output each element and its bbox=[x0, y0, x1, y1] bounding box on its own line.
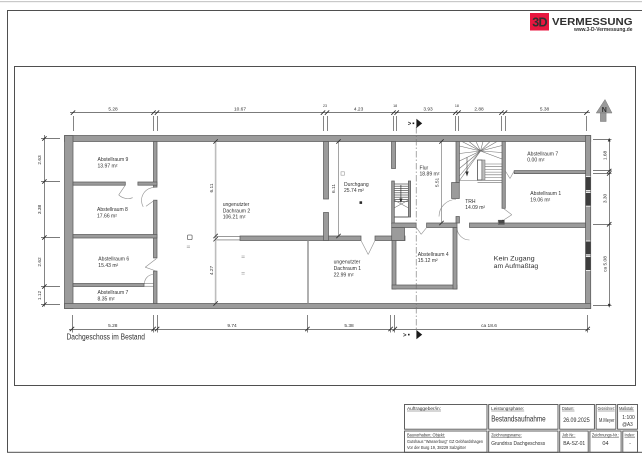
svg-text:04: 04 bbox=[602, 441, 608, 447]
svg-text:3D: 3D bbox=[532, 16, 547, 30]
svg-text:Bauvorhaben; Objekt:: Bauvorhaben; Objekt: bbox=[407, 432, 445, 437]
svg-text:-: - bbox=[629, 441, 631, 447]
svg-text:15.43 m²: 15.43 m² bbox=[98, 263, 118, 269]
svg-text:>: > bbox=[403, 333, 407, 339]
svg-text:5.28: 5.28 bbox=[108, 107, 118, 113]
svg-text:6.11: 6.11 bbox=[331, 184, 337, 193]
svg-text:BA-SZ-01: BA-SZ-01 bbox=[563, 441, 585, 447]
svg-text:10.67: 10.67 bbox=[234, 107, 246, 113]
svg-text:5.38: 5.38 bbox=[540, 107, 550, 113]
svg-text:26.09.2025: 26.09.2025 bbox=[563, 418, 590, 424]
svg-text:9.74: 9.74 bbox=[227, 323, 237, 329]
svg-text:ungenutzter: ungenutzter bbox=[334, 260, 361, 266]
svg-text:Gutshaus "Wasserburg" GZ Gebha: Gutshaus "Wasserburg" GZ Gebhardshagen bbox=[407, 439, 483, 444]
svg-text:106.21 m²: 106.21 m² bbox=[223, 215, 246, 221]
svg-text:13.97 m²: 13.97 m² bbox=[98, 164, 118, 170]
svg-text:M.Meyer: M.Meyer bbox=[599, 418, 615, 424]
svg-text:Datum:: Datum: bbox=[562, 406, 575, 411]
svg-text:2.63: 2.63 bbox=[37, 155, 43, 165]
svg-text:4.27: 4.27 bbox=[209, 266, 215, 276]
svg-text:Abstellraum 7: Abstellraum 7 bbox=[98, 290, 129, 296]
svg-text:am Aufmaßtag: am Aufmaßtag bbox=[494, 263, 539, 270]
svg-text:Dachgeschoss im Bestand: Dachgeschoss im Bestand bbox=[67, 333, 146, 342]
svg-text:25.74 m²: 25.74 m² bbox=[344, 188, 364, 194]
svg-text:23: 23 bbox=[323, 104, 327, 108]
svg-text:Auftraggeber/in:: Auftraggeber/in: bbox=[407, 406, 441, 411]
svg-text:TRH: TRH bbox=[465, 199, 476, 205]
svg-text:4.23: 4.23 bbox=[354, 107, 364, 113]
svg-text:18: 18 bbox=[455, 104, 459, 108]
svg-text:Dachraum 1: Dachraum 1 bbox=[334, 266, 362, 272]
svg-text:Bestandsaufnahme: Bestandsaufnahme bbox=[491, 414, 546, 424]
svg-text:Index:: Index: bbox=[625, 432, 636, 437]
svg-text:3.38: 3.38 bbox=[37, 205, 43, 215]
svg-text:5.51: 5.51 bbox=[434, 178, 440, 188]
svg-text:18: 18 bbox=[393, 104, 397, 108]
svg-text:N: N bbox=[602, 107, 607, 114]
svg-text:Abstellraum 9: Abstellraum 9 bbox=[98, 157, 129, 163]
svg-text:Vor der Burg 19, 38229 Salzgit: Vor der Burg 19, 38229 Salzgitter bbox=[407, 445, 466, 450]
svg-text:Zeichnungs-Nr.:: Zeichnungs-Nr.: bbox=[592, 432, 619, 437]
svg-text:ungenutzter: ungenutzter bbox=[223, 202, 250, 208]
svg-text:15.12 m²: 15.12 m² bbox=[418, 258, 438, 264]
svg-text:Kein Zugang: Kein Zugang bbox=[494, 256, 535, 263]
svg-text:Leistungsphase:: Leistungsphase: bbox=[491, 406, 524, 411]
svg-text:1.68: 1.68 bbox=[602, 151, 608, 161]
svg-text:3.30: 3.30 bbox=[602, 194, 608, 204]
svg-text:@A3: @A3 bbox=[622, 422, 633, 428]
svg-text:6.11: 6.11 bbox=[209, 183, 215, 192]
svg-text:2.88: 2.88 bbox=[474, 107, 484, 113]
svg-text:Abstellraum 6: Abstellraum 6 bbox=[98, 257, 129, 263]
svg-text:5.28: 5.28 bbox=[108, 323, 118, 329]
svg-text:Dachraum 2: Dachraum 2 bbox=[223, 208, 251, 214]
svg-text:Abstellraum 8: Abstellraum 8 bbox=[97, 207, 128, 213]
svg-text:ca 5.08: ca 5.08 bbox=[602, 256, 608, 272]
svg-text:Zeichnungsname:: Zeichnungsname: bbox=[491, 432, 522, 437]
svg-text:3.93: 3.93 bbox=[423, 107, 433, 113]
svg-text:1.12: 1.12 bbox=[37, 291, 43, 301]
svg-text:>: > bbox=[408, 122, 412, 128]
svg-text:19.06 m²: 19.06 m² bbox=[530, 198, 550, 204]
svg-text:14.09 m²: 14.09 m² bbox=[465, 205, 485, 211]
svg-text:8.35 m²: 8.35 m² bbox=[98, 297, 115, 303]
svg-text:22.99 m²: 22.99 m² bbox=[334, 272, 354, 278]
svg-text:5.38: 5.38 bbox=[344, 323, 354, 329]
svg-text:Abstellraum 1: Abstellraum 1 bbox=[530, 191, 561, 197]
svg-text:Grundriss Dachgeschoss: Grundriss Dachgeschoss bbox=[491, 441, 545, 447]
svg-text:17.66 m²: 17.66 m² bbox=[97, 214, 117, 220]
svg-text:Job Nr.:: Job Nr.: bbox=[562, 432, 576, 437]
svg-text:www.3-D-Vermessung.de: www.3-D-Vermessung.de bbox=[573, 27, 633, 33]
svg-text:ca 18.6: ca 18.6 bbox=[481, 323, 497, 329]
svg-text:Gezeichnet:: Gezeichnet: bbox=[598, 406, 615, 411]
svg-text:Maßstab:: Maßstab: bbox=[619, 406, 634, 411]
svg-text:0.00 m²: 0.00 m² bbox=[527, 158, 544, 164]
svg-text:1:100: 1:100 bbox=[622, 415, 635, 421]
svg-text:2.62: 2.62 bbox=[37, 257, 43, 267]
svg-text:18.89 m²: 18.89 m² bbox=[420, 171, 440, 177]
